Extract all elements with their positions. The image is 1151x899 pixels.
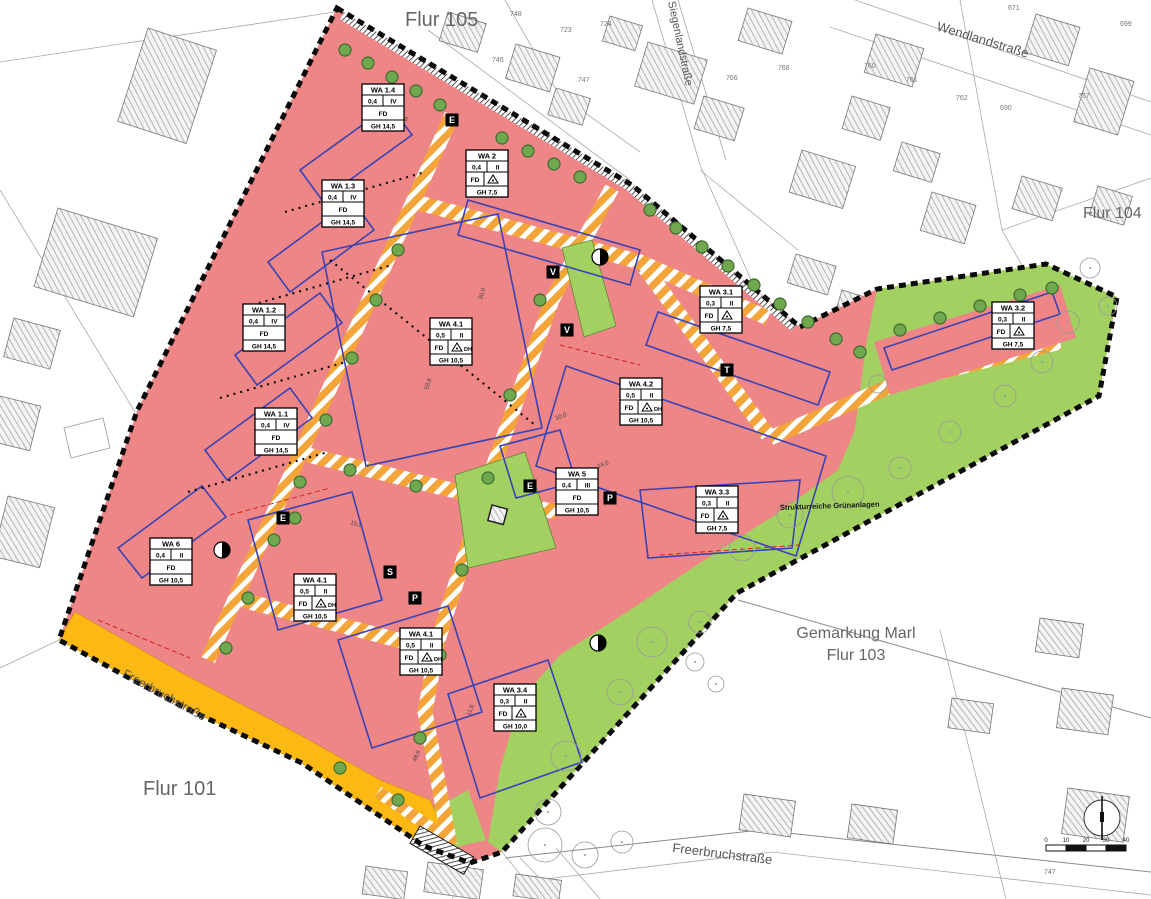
wa-height: GH 7,5 [477, 190, 498, 197]
tree-icon [414, 732, 426, 744]
wa-grz: 0,4 [368, 99, 377, 106]
wa-title: WA 5 [568, 470, 586, 479]
tree-icon [344, 464, 356, 476]
marker-glyph: T [724, 365, 730, 375]
tree-icon [830, 333, 842, 345]
wa-label-box: WA 3.40,3IIFDGH 10,0 [494, 684, 536, 731]
wa-roof-form: FD [299, 601, 308, 608]
parcel-number: 747 [1044, 869, 1056, 876]
wa-roof-form: FD [573, 495, 582, 502]
wa-label-box: WA 1.10,4IVFDGH 14,5 [255, 408, 297, 455]
wa-roof-form: FD [167, 565, 176, 572]
wa-title: WA 3.2 [1001, 304, 1025, 313]
wa-title: WA 3.1 [709, 288, 733, 297]
tree-icon [1046, 282, 1058, 294]
wa-height: GH 7,5 [1003, 342, 1024, 349]
tree-icon [289, 512, 301, 524]
tree-icon [574, 171, 586, 183]
tree-center-dot [694, 661, 696, 663]
wa-roof-type: DH [654, 407, 662, 413]
wa-label-box: WA 60,4IIFDGH 10,5 [150, 538, 192, 585]
wa-title: WA 3.4 [503, 686, 528, 695]
tree-icon [748, 279, 760, 291]
wa-grz: 0,4 [562, 483, 571, 490]
wa-label-box: WA 1.40,4IVFDGH 14,5 [362, 84, 404, 131]
wa-grz: 0,4 [472, 165, 481, 172]
scale-tick-label: 20 [1083, 838, 1090, 844]
half-circle-sign-icon [592, 249, 608, 265]
parcel-number: 757 [1078, 93, 1090, 100]
wa-label-box: WA 1.30,4IVFDGH 14,5 [322, 180, 364, 227]
utility-marker: E [446, 114, 459, 127]
wa-grz: 0,3 [702, 501, 711, 508]
tree-center-dot [565, 755, 567, 757]
parcel-number: 724 [600, 21, 612, 28]
tree-icon [386, 71, 398, 83]
utility-marker: E [277, 512, 290, 525]
label-flur-101: Flur 101 [143, 778, 216, 800]
tree-icon [894, 324, 906, 336]
wa-height: GH 10,5 [629, 418, 654, 425]
utility-marker: E [524, 480, 537, 493]
utility-marker: S [384, 566, 397, 579]
wa-title: WA 1.4 [371, 86, 396, 95]
tree-center-dot [1089, 267, 1091, 269]
wa-grz: 0,5 [626, 393, 635, 400]
tree-center-dot [1107, 305, 1109, 307]
tree-icon [268, 534, 280, 546]
tree-icon [339, 44, 351, 56]
tree-center-dot [789, 514, 791, 516]
wa-roof-form: FD [272, 435, 281, 442]
tree-icon [410, 480, 422, 492]
wa-label-box: WA 4.10,5IIFDDHGH 10,5 [294, 574, 336, 621]
wa-height: GH 14,5 [331, 220, 356, 227]
marker-glyph: S [387, 567, 393, 577]
tree-icon [974, 300, 986, 312]
wa-title: WA 3.3 [705, 488, 729, 497]
wa-grz: 0,5 [406, 643, 415, 650]
wa-label-box: WA 20,4IIFDGH 7,5 [466, 150, 508, 197]
tree-icon [644, 204, 656, 216]
wa-floors: II [726, 501, 730, 508]
wa-label-box: WA 4.20,5IIFDDHGH 10,5 [620, 378, 662, 425]
wa-roof-type: DH [464, 347, 472, 353]
wa-roof-form: FD [499, 711, 508, 718]
tree-icon [294, 476, 306, 488]
label-flur-105: Flur 105 [405, 9, 478, 31]
wa-grz: 0,5 [300, 589, 309, 596]
wa-label-box: WA 50,4IIIFDGH 10,5 [556, 468, 598, 515]
wa-height: GH 14,5 [252, 344, 277, 351]
wa-roof-form: FD [705, 313, 714, 320]
parcel-number: 760 [864, 63, 876, 70]
tree-center-dot [544, 844, 546, 846]
tree-center-dot [899, 467, 901, 469]
parcel-number: 723 [560, 27, 572, 34]
half-circle-sign-icon [590, 635, 606, 651]
wa-height: GH 10,5 [439, 358, 464, 365]
marker-glyph: E [280, 513, 286, 523]
tree-icon [434, 99, 446, 111]
wa-grz: 0,4 [328, 195, 337, 202]
tree-icon [370, 294, 382, 306]
tree-icon [534, 294, 546, 306]
wa-title: WA 2 [478, 152, 496, 161]
wa-height: GH 10,0 [503, 724, 528, 731]
wa-label-box: WA 3.30,3IIFDGH 7,5 [696, 486, 738, 533]
wa-roof-form: FD [701, 513, 710, 520]
scale-tick-label: 30 [1103, 838, 1110, 844]
wa-floors: II [524, 699, 528, 706]
tree-center-dot [1004, 395, 1006, 397]
wa-floors: IV [350, 195, 357, 202]
tree-icon [934, 312, 946, 324]
tree-icon [722, 260, 734, 272]
tree-center-dot [877, 383, 879, 385]
wa-title: WA 4.2 [629, 380, 653, 389]
wa-grz: 0,3 [998, 317, 1007, 324]
wa-height: GH 14,5 [264, 448, 289, 455]
marker-glyph: E [449, 115, 455, 125]
wa-label-box: WA 1.20,4IVFDGH 14,5 [243, 304, 285, 351]
tree-icon [320, 414, 332, 426]
tree-icon [774, 298, 786, 310]
wa-roof-form: FD [260, 331, 269, 338]
building [739, 794, 796, 837]
tree-icon [548, 158, 560, 170]
tree-center-dot [715, 683, 717, 685]
wa-grz: 0,4 [249, 319, 258, 326]
tree-icon [392, 244, 404, 256]
marker-glyph: E [527, 481, 533, 491]
tree-center-dot [621, 841, 623, 843]
wa-floors: II [180, 553, 184, 560]
marker-glyph: V [550, 267, 556, 277]
wa-label-box: WA 4.10,5IIFDDHGH 10,5 [430, 318, 472, 365]
tree-icon [522, 145, 534, 157]
tree-icon [802, 316, 814, 328]
parcel-number: 748 [510, 11, 522, 18]
map-canvas: EVVTESPPE 748723724746747766768760761762… [0, 0, 1151, 899]
tree-icon [670, 222, 682, 234]
tree-center-dot [847, 491, 849, 493]
wa-floors: II [324, 589, 328, 596]
tree-icon [220, 642, 232, 654]
wa-floors: II [460, 333, 464, 340]
tree-icon [392, 794, 404, 806]
tree-icon [504, 389, 516, 401]
wa-roof-form: FD [435, 345, 444, 352]
tree-center-dot [547, 811, 549, 813]
tree-center-dot [651, 641, 653, 643]
wa-roof-form: FD [471, 177, 480, 184]
parcel-number: 747 [578, 77, 590, 84]
wa-label-box: WA 3.20,3IIFDGH 7,5 [992, 302, 1034, 349]
wa-roof-form: FD [405, 655, 414, 662]
marker-glyph: P [412, 593, 418, 603]
wa-title: WA 6 [162, 540, 180, 549]
tree-center-dot [741, 547, 743, 549]
wa-title: WA 1.2 [252, 306, 276, 315]
wa-roof-form: FD [379, 111, 388, 118]
wa-grz: 0,3 [706, 301, 715, 308]
wa-height: GH 10,5 [303, 614, 328, 621]
wa-height: GH 14,5 [371, 124, 396, 131]
tree-icon [334, 762, 346, 774]
label-flur-104: Flur 104 [1083, 205, 1142, 222]
wa-floors: II [430, 643, 434, 650]
utility-marker: P [409, 592, 422, 605]
tree-center-dot [699, 621, 701, 623]
tree-center-dot [584, 854, 586, 856]
parcel-number: 690 [1000, 105, 1012, 112]
parcel-number: 762 [956, 95, 968, 102]
marker-glyph: P [607, 493, 613, 503]
tree-center-dot [619, 691, 621, 693]
tree-icon [456, 564, 468, 576]
tree-icon [410, 85, 422, 97]
tree-center-dot [1067, 321, 1069, 323]
tree-center-dot [949, 431, 951, 433]
wa-grz: 0,3 [500, 699, 509, 706]
building [948, 698, 994, 734]
development-plan-map: EVVTESPPE 748723724746747766768760761762… [0, 0, 1151, 899]
tree-icon [496, 132, 508, 144]
building [847, 804, 897, 844]
marker-glyph: V [564, 325, 570, 335]
wa-title: WA 1.3 [331, 182, 355, 191]
wa-grz: 0,5 [436, 333, 445, 340]
tree-icon [696, 241, 708, 253]
wa-roof-form: FD [997, 329, 1006, 336]
utility-marker: P [604, 492, 617, 505]
wa-floors: II [496, 165, 500, 172]
parcel-number: 768 [778, 65, 790, 72]
wa-grz: 0,4 [261, 423, 270, 430]
wa-title: WA 4.1 [409, 630, 433, 639]
wa-floors: IV [271, 319, 278, 326]
label-flur-103: Flur 103 [827, 647, 886, 664]
wa-roof-form: FD [339, 207, 348, 214]
label-gemarkung-marl: Gemarkung Marl [796, 625, 915, 642]
wa-height: GH 7,5 [707, 526, 728, 533]
wa-floors: IV [390, 99, 397, 106]
utility-marker: V [561, 324, 574, 337]
wa-label-box: WA 3.10,3IIFDGH 7,5 [700, 286, 742, 333]
building [1056, 688, 1113, 735]
wa-roof-type: DH [328, 603, 336, 609]
parcel-number: 761 [906, 77, 918, 84]
tree-icon [362, 57, 374, 69]
wa-height: GH 10,5 [409, 668, 434, 675]
tree-icon [242, 592, 254, 604]
tree-center-dot [1041, 361, 1043, 363]
scale-tick-label: 10 [1063, 838, 1070, 844]
wa-title: WA 1.1 [264, 410, 288, 419]
scale-tick-label: 40 [1123, 838, 1130, 844]
tree-icon [854, 346, 866, 358]
wa-roof-type: DH [434, 657, 442, 663]
wa-grz: 0,4 [156, 553, 165, 560]
parcel-number: 699 [1120, 21, 1132, 28]
tree-icon [482, 472, 494, 484]
utility-marker: V [547, 266, 560, 279]
building [362, 866, 407, 899]
wa-title: WA 4.1 [303, 576, 327, 585]
parcel-number: 766 [726, 75, 738, 82]
wa-roof-form: FD [625, 405, 634, 412]
half-circle-sign-icon [214, 542, 230, 558]
wa-height: GH 10,5 [565, 508, 590, 515]
parcel-number: 746 [492, 57, 504, 64]
utility-marker: T [721, 364, 734, 377]
wa-title: WA 4.1 [439, 320, 463, 329]
building [1035, 618, 1083, 658]
wa-height: GH 7,5 [711, 326, 732, 333]
wa-floors: III [585, 483, 591, 490]
wa-floors: II [650, 393, 654, 400]
tree-icon [1014, 289, 1026, 301]
wa-label-box: WA 4.10,5IIFDDHGH 10,5 [400, 628, 442, 675]
tree-icon [346, 352, 358, 364]
wa-floors: II [1022, 317, 1026, 324]
wa-floors: II [730, 301, 734, 308]
parcel-number: 671 [1008, 5, 1020, 12]
wa-height: GH 10,5 [159, 578, 184, 585]
wa-floors: IV [283, 423, 290, 430]
playground-symbol [488, 505, 508, 525]
